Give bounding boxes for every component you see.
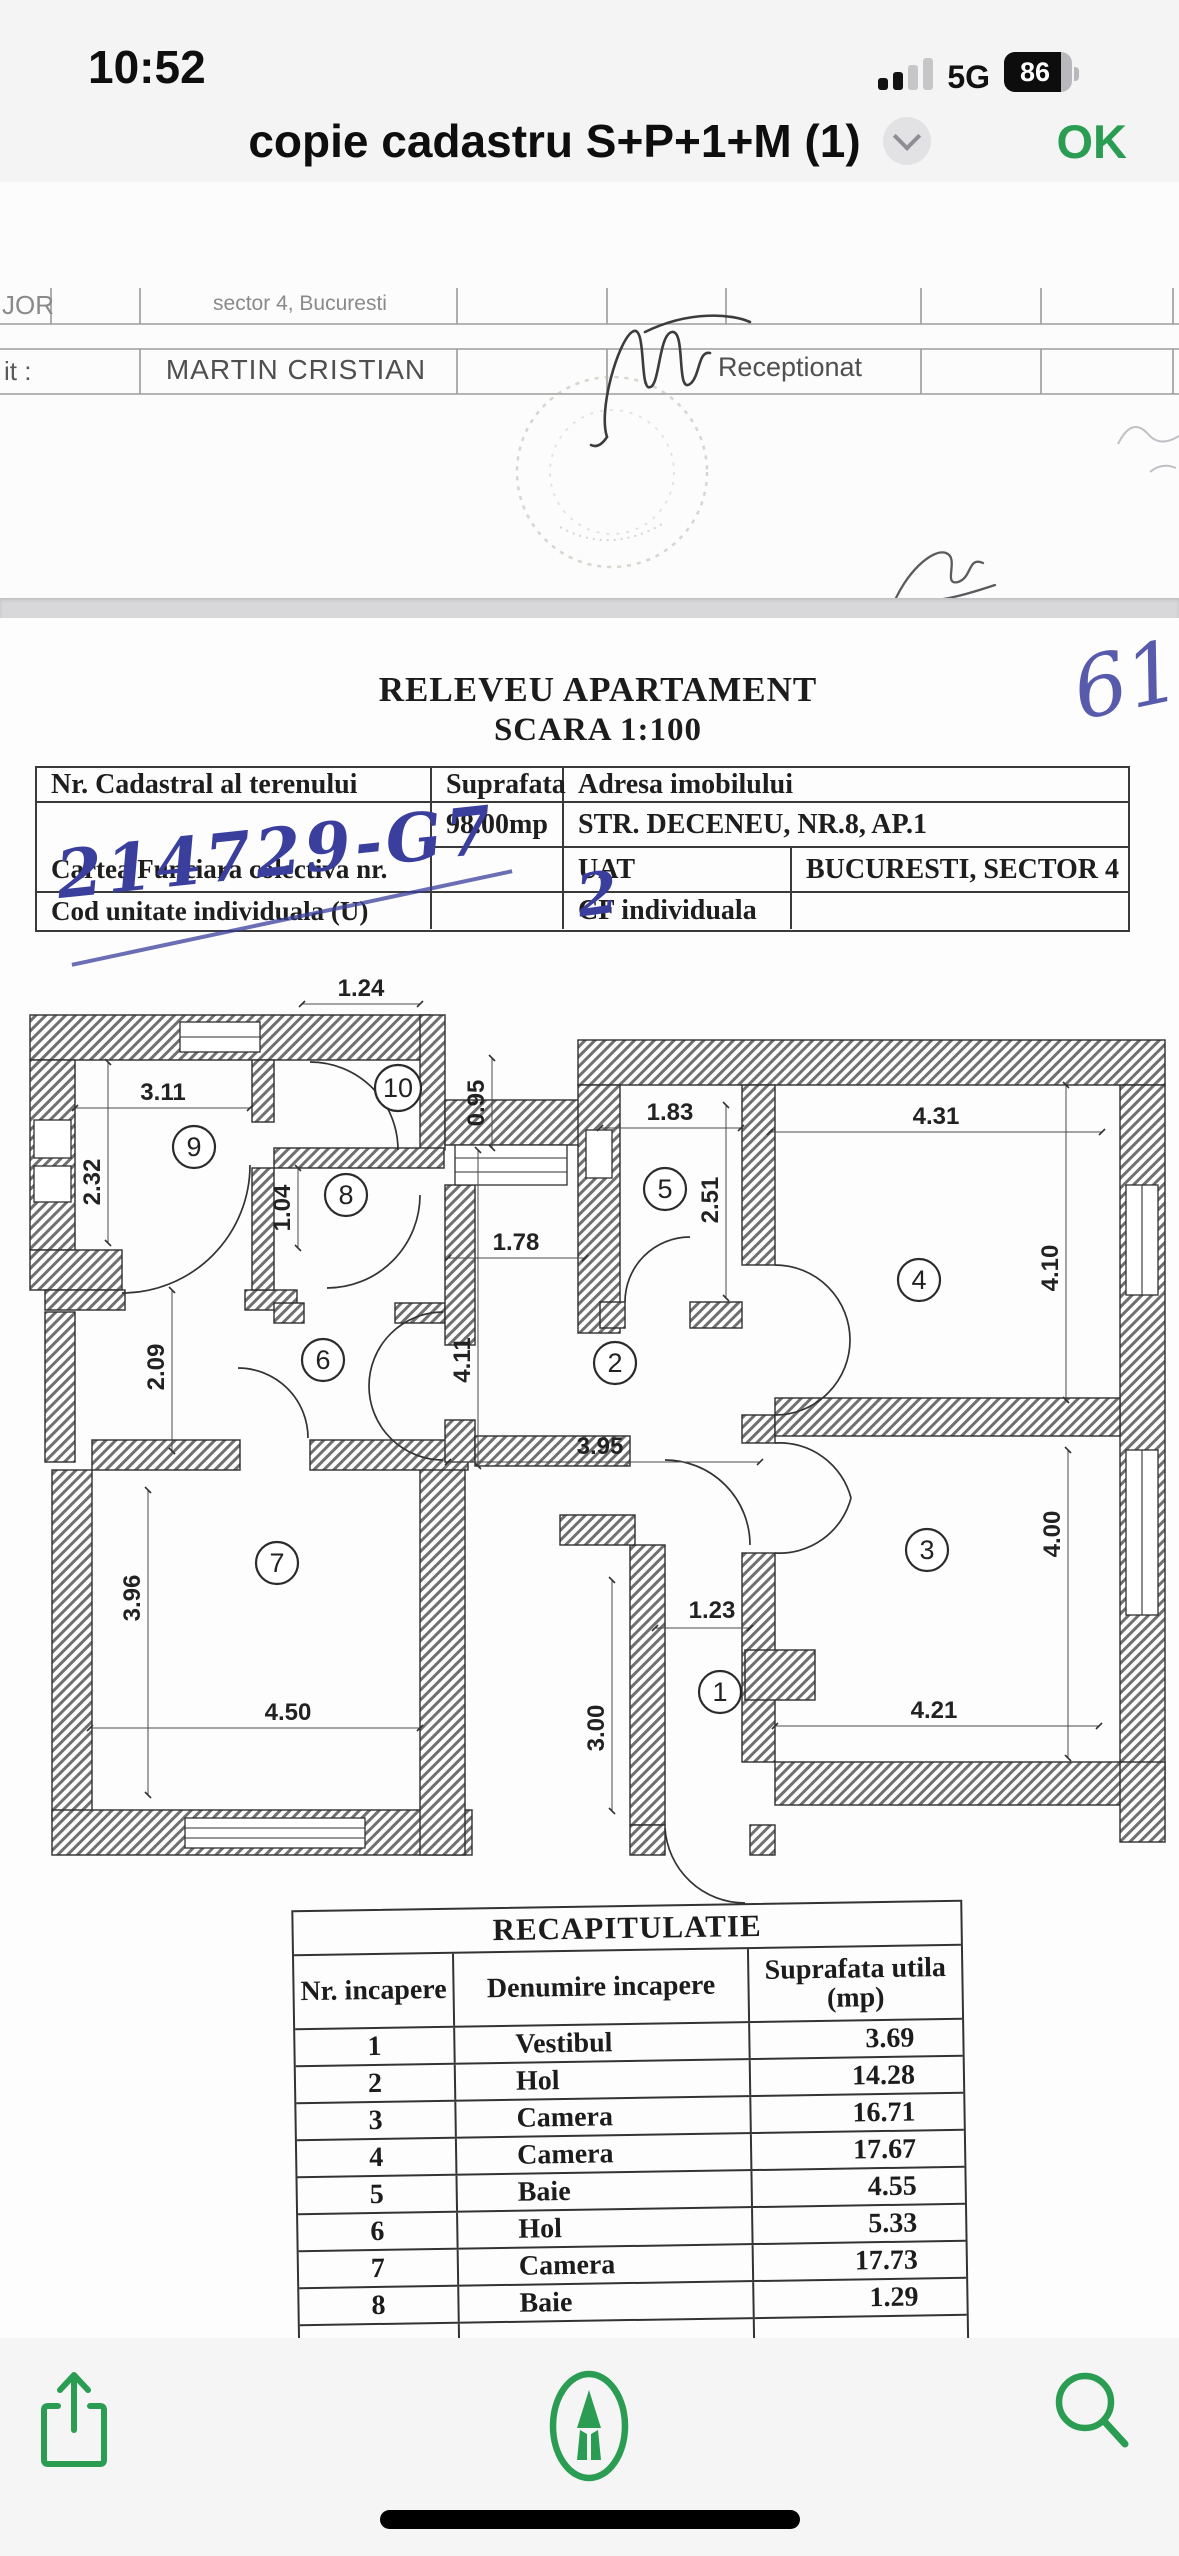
title-bar: copie cadastru S+P+1+M (1) OK (0, 100, 1179, 182)
screenshot-root: { "status_bar": { "time": "10:52", "netw… (0, 0, 1179, 2556)
dimension-label: 3.00 (583, 1705, 610, 1752)
dimension-label: 3.96 (119, 1575, 146, 1622)
recap-cell-nr: 4 (297, 2139, 458, 2177)
dimension-label: 4.31 (913, 1103, 960, 1130)
markup-button[interactable] (544, 2368, 634, 2478)
battery-percent: 86 (1004, 52, 1066, 92)
recap-cell-nr: 1 (295, 2028, 456, 2066)
page1-left-label: it : (4, 356, 31, 387)
share-icon (36, 2368, 114, 2472)
dimension-label: 2.32 (79, 1159, 106, 1206)
recap-cell-suprafata: 17.67 (752, 2131, 965, 2169)
info-cell-empty-3 (792, 893, 1129, 929)
recap-cell-suprafata: 4.55 (752, 2168, 965, 2206)
round-stamp (517, 377, 707, 567)
handwritten-registration-number: 6144 (1064, 618, 1179, 739)
cadastral-info-table: Nr. Cadastral al terenului Suprafata Adr… (35, 766, 1130, 932)
signature-2 (893, 552, 995, 598)
recap-cell-denumire: Camera (457, 2134, 753, 2174)
battery-icon: 86 (1004, 52, 1072, 92)
recap-cell-denumire: Camera (456, 2097, 752, 2137)
recap-cell-nr: 8 (299, 2287, 460, 2325)
recap-cell-denumire: Vestibul (455, 2023, 751, 2063)
battery-cap (1074, 67, 1079, 81)
dimension-label: 3.11 (140, 1079, 185, 1106)
search-icon (1051, 2368, 1135, 2472)
page-divider (0, 598, 1179, 618)
recap-cell-nr: 5 (297, 2176, 458, 2214)
status-time: 10:52 (88, 40, 206, 94)
document-page-1[interactable]: JOR sector 4, Bucuresti it : MARTIN CRIS… (0, 182, 1179, 598)
room-number-label: 10 (383, 1073, 413, 1103)
markup-icon (546, 2368, 632, 2488)
document-page-2[interactable]: 6144 RELEVEU APARTAMENT SCARA 1:100 Nr. … (0, 618, 1179, 2338)
recap-cell-suprafata: 17.73 (754, 2242, 967, 2280)
room-number-label: 5 (657, 1174, 672, 1204)
signal-strength-icon (878, 58, 933, 92)
info-cell-empty-2 (432, 893, 564, 929)
recap-cell-suprafata: 5.33 (753, 2205, 966, 2243)
recap-cell-suprafata: 3.69 (750, 2020, 963, 2058)
page1-name-text: MARTIN CRISTIAN (146, 354, 446, 386)
recap-cell-nr: 6 (298, 2213, 459, 2251)
recap-cell-denumire: Hol (456, 2060, 752, 2100)
room-number-label: 1 (712, 1677, 727, 1707)
room-number-label: 2 (607, 1348, 622, 1378)
plan-scale-heading: SCARA 1:100 (298, 712, 898, 749)
dimension-label: 2.51 (697, 1177, 724, 1224)
recap-cell-suprafata: 14.28 (751, 2057, 964, 2095)
dimension-label: 4.11 (449, 1337, 476, 1382)
page1-receptionat-label: Receptionat (640, 352, 940, 383)
dimension-label: 4.50 (265, 1699, 312, 1726)
chevron-down-icon (893, 123, 921, 151)
dimension-label: 1.83 (647, 1099, 694, 1126)
room-number-label: 9 (186, 1132, 201, 1162)
recap-cell-denumire: Hol (458, 2208, 754, 2248)
dimension-label: 2.09 (143, 1344, 170, 1391)
room-number-label: 6 (315, 1345, 330, 1375)
page1-sector-text: sector 4, Bucuresti (150, 292, 450, 316)
recap-cell-nr (300, 2324, 461, 2338)
recap-cell-denumire: Baie (459, 2282, 755, 2322)
recap-cell-denumire: Baie (457, 2171, 753, 2211)
dimension-label: 1.23 (689, 1597, 736, 1624)
title-menu-button[interactable] (883, 117, 931, 165)
recap-cell-nr: 7 (299, 2250, 460, 2288)
room-number-label: 8 (338, 1180, 353, 1210)
document-title: copie cadastru S+P+1+M (1) (248, 114, 860, 168)
search-button[interactable] (1048, 2368, 1138, 2478)
dimension-label: 4.21 (911, 1697, 958, 1724)
share-button[interactable] (30, 2368, 120, 2478)
network-type-label: 5G (947, 62, 990, 92)
status-bar: 10:52 5G 86 (0, 0, 1179, 100)
room-number-label: 3 (919, 1535, 934, 1565)
recap-cell-nr: 3 (296, 2102, 457, 2140)
dimension-label: 0.95 (463, 1080, 490, 1127)
recap-col-denumire: Denumire incapere (454, 1949, 750, 2026)
dimension-label: 1.04 (269, 1184, 296, 1231)
recap-cell-nr: 2 (296, 2065, 457, 2103)
recap-cell-denumire: Camera (459, 2245, 755, 2285)
plan-heading: RELEVEU APARTAMENT (298, 670, 898, 710)
recap-col-nr: Nr. incapere (294, 1954, 455, 2029)
ok-button[interactable]: OK (1057, 100, 1128, 182)
dimension-label: 4.00 (1039, 1511, 1066, 1558)
recap-cell-suprafata: 16.71 (751, 2094, 964, 2132)
dimension-label: 4.10 (1037, 1245, 1064, 1292)
recap-col-suprafata: Suprafata utila (mp) (749, 1946, 962, 2021)
info-label-adresa: Adresa imobilului (564, 768, 1129, 803)
faint-handwriting (1118, 427, 1179, 472)
dimension-label: 3.95 (577, 1433, 624, 1460)
room-number-label: 7 (269, 1548, 284, 1578)
dimension-label: 1.78 (493, 1229, 540, 1256)
info-value-uat: BUCURESTI, SECTOR 4 (792, 848, 1129, 893)
info-label-nr-cadastral: Nr. Cadastral al terenului (37, 768, 432, 803)
floor-plan: 1.24 3.11 0.95 2.32 1.04 2.09 1.78 4.11 … (0, 960, 1179, 1905)
status-indicators: 5G 86 (878, 52, 1079, 92)
room-number-label: 4 (911, 1265, 926, 1295)
recap-cell-suprafata (755, 2316, 968, 2338)
recap-table: RECAPITULATIE Nr. incapere Denumire inca… (291, 1900, 969, 2338)
home-indicator[interactable] (380, 2510, 800, 2529)
page1-cut-cell-text: JOR (2, 290, 54, 321)
recap-cell-suprafata: 1.29 (754, 2279, 967, 2317)
dimension-label: 1.24 (338, 975, 385, 1002)
page1-table-lines (0, 182, 1179, 598)
info-value-adresa: STR. DECENEU, NR.8, AP.1 (564, 803, 1129, 848)
dimension-labels: 1.24 3.11 0.95 2.32 1.04 2.09 1.78 4.11 … (79, 975, 1066, 1751)
